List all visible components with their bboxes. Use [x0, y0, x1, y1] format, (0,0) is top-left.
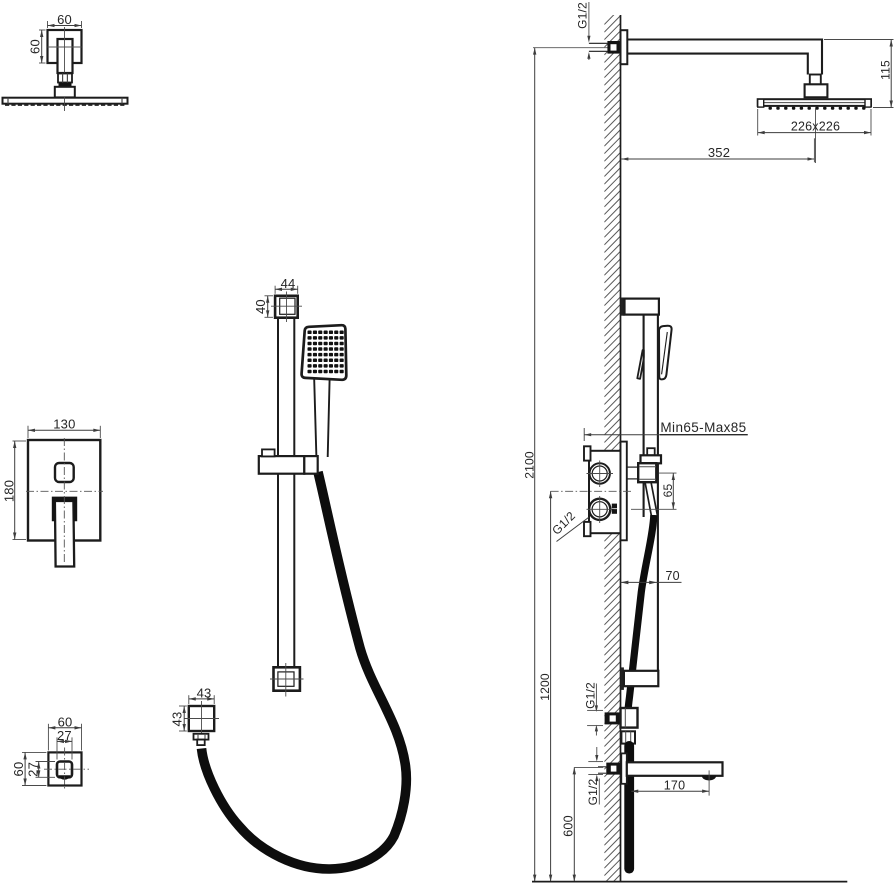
svg-text:G1/2: G1/2 [576, 2, 590, 29]
svg-text:70: 70 [665, 569, 679, 583]
svg-text:226x226: 226x226 [791, 119, 840, 133]
svg-text:40: 40 [253, 299, 268, 314]
svg-text:352: 352 [708, 145, 730, 160]
svg-text:27: 27 [25, 762, 40, 777]
svg-text:65: 65 [661, 484, 675, 498]
svg-text:60: 60 [11, 762, 26, 777]
svg-text:170: 170 [664, 778, 685, 792]
svg-text:60: 60 [27, 39, 42, 54]
svg-text:43: 43 [169, 712, 184, 727]
svg-text:44: 44 [281, 276, 296, 291]
svg-text:180: 180 [1, 480, 16, 502]
svg-text:130: 130 [53, 417, 75, 432]
svg-text:1200: 1200 [538, 673, 552, 701]
svg-text:115: 115 [878, 60, 892, 80]
svg-text:43: 43 [197, 685, 212, 700]
svg-text:600: 600 [562, 815, 576, 836]
svg-text:G1/2: G1/2 [586, 778, 600, 805]
svg-text:G1/2: G1/2 [583, 682, 597, 709]
svg-text:Min65-Max85: Min65-Max85 [660, 420, 746, 435]
svg-text:27: 27 [57, 728, 72, 743]
svg-text:2100: 2100 [522, 451, 536, 479]
svg-text:60: 60 [57, 12, 72, 27]
